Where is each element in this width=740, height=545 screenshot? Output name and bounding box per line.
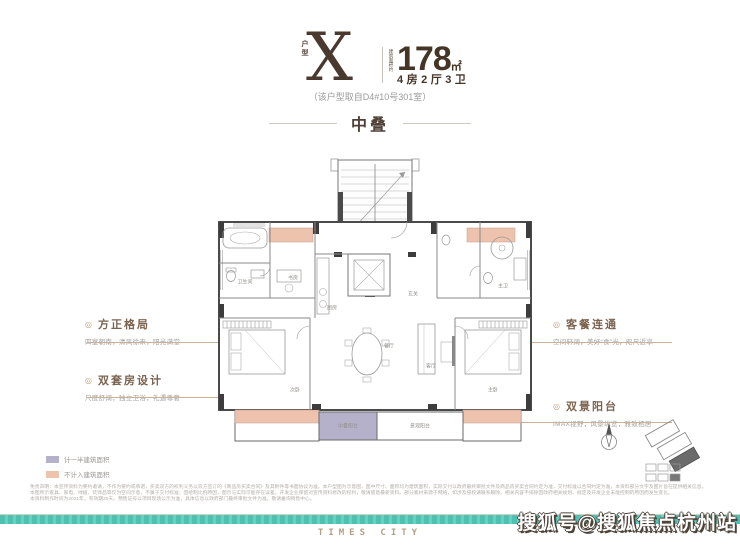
ring-bullet-icon: ◎ [85, 376, 94, 385]
room-label: 主卧 [488, 387, 498, 394]
legend-item: 不计入建筑面积 [46, 469, 110, 479]
room-label: 餐厅 [384, 343, 394, 350]
legend-label: 计一半建筑面积 [64, 454, 110, 464]
annotation-title: 双套房设计 [98, 372, 163, 388]
site-key-plan [640, 414, 718, 486]
unit-type-letter: X [306, 22, 353, 95]
room-label: 客厅 [426, 363, 436, 370]
ring-bullet-icon: ◎ [553, 402, 562, 411]
room-label: 卫生间 [237, 279, 252, 286]
room-label: 书房 [288, 275, 298, 282]
ring-bullet-icon: ◎ [85, 320, 94, 329]
room-label: 景观阳台 [410, 423, 430, 430]
section-title-row: 中叠 [0, 111, 740, 135]
room-label: 次卧 [290, 387, 300, 394]
legend-swatch [46, 456, 59, 463]
floorplan-poster-page: 户型 X 建筑面积约 178㎡ 4房2厅3卫 （该户型取自D4#10号301室）… [0, 0, 740, 545]
annotation-title: 方正格局 [98, 316, 150, 332]
room-label: 玄关 [408, 291, 418, 298]
room-label: 厨房 [327, 305, 337, 312]
annotation-subtitle: 空间轩阔，美好“食”光，咫尺近享 [553, 336, 688, 346]
room-spec: 4房2厅3卫 [397, 71, 469, 87]
compass-icon [597, 422, 621, 452]
sohu-watermark: 搜狐号@搜狐焦点杭州站 [517, 508, 737, 535]
title-line-left [269, 123, 337, 124]
disclaimer: 免责声明：本宣传资料为要约邀请，不作为要约或承诺，买卖双方的权利义务以双方签订的… [30, 485, 712, 504]
unit-source-note: （该户型取自D4#10号301室） [0, 90, 740, 103]
section-title: 中叠 [351, 111, 389, 135]
floor-plan-svg [215, 158, 535, 452]
annotation-title: 客餐连通 [566, 316, 618, 332]
header-divider [382, 47, 383, 83]
annotation-title: 双景阳台 [566, 398, 618, 414]
legend: 计一半建筑面积不计入建筑面积 [46, 454, 110, 484]
legend-swatch [46, 471, 59, 478]
title-line-right [403, 123, 471, 124]
room-label: 主卫 [498, 283, 508, 290]
annotation-subtitle: 四室朝南，清风徐来，阳光满堂 [85, 336, 220, 346]
legend-label: 不计入建筑面积 [64, 469, 110, 479]
ring-bullet-icon: ◎ [553, 320, 562, 329]
legend-item: 计一半建筑面积 [46, 454, 110, 464]
floor-plan: 卫生间书房厨房玄关主卫次卧主卧餐厅客厅中叠阳台景观阳台 [215, 158, 535, 452]
area-prefix-label: 建筑面积约 [389, 49, 394, 72]
disclaimer-line: 本资料制作时间为2021年，有效期30天。预售证号以项目现场公示为准，具体信息以… [30, 497, 453, 503]
room-label: 中叠阳台 [338, 423, 358, 430]
